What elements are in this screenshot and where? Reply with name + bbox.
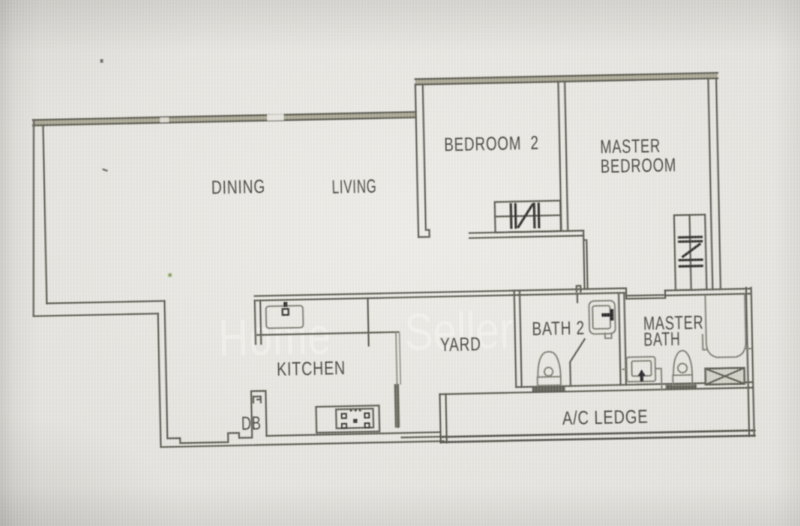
- svg-text:A/C LEDGE: A/C LEDGE: [562, 405, 648, 429]
- svg-text:YARD: YARD: [440, 333, 481, 355]
- svg-text:BEDROOM: BEDROOM: [600, 154, 676, 177]
- svg-text:KITCHEN: KITCHEN: [277, 357, 346, 380]
- svg-text:BATH: BATH: [643, 329, 680, 351]
- svg-text:LIVING: LIVING: [332, 176, 377, 198]
- svg-text:DINING: DINING: [211, 176, 265, 199]
- svg-text:BEDROOM 2: BEDROOM 2: [444, 132, 539, 156]
- svg-text:BATH 2: BATH 2: [532, 317, 585, 340]
- svg-text:DB: DB: [241, 413, 261, 434]
